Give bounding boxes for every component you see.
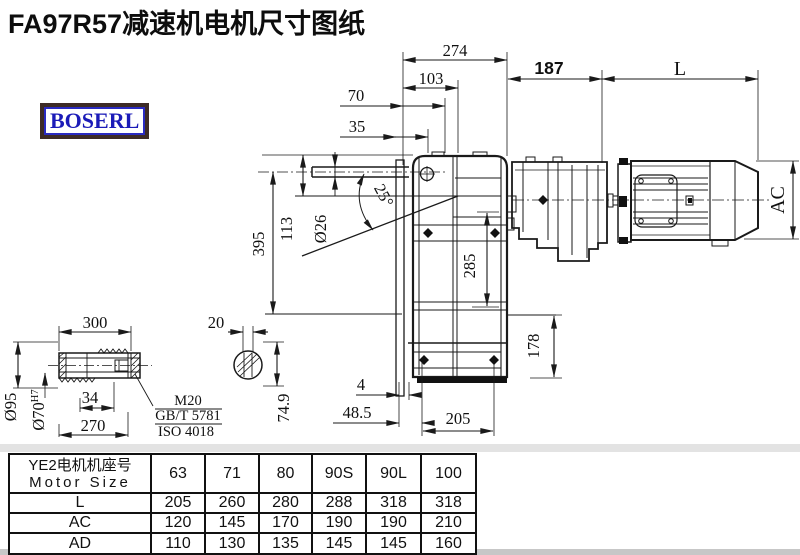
dim-300: 300 xyxy=(83,313,108,332)
dim-113: 113 xyxy=(277,217,296,241)
dim-35: 35 xyxy=(349,117,366,136)
table-row-header: YE2电机机座号 Motor Size 63 71 80 90S 90L 100 xyxy=(9,454,476,493)
table-col-71: 71 xyxy=(205,454,259,493)
dim-dia26: Ø26 xyxy=(311,215,330,243)
dim-L: L xyxy=(674,58,686,80)
table-cell: 260 xyxy=(205,493,259,513)
thread-callout-m20: M20 xyxy=(174,393,201,409)
dim-4: 4 xyxy=(357,375,365,394)
dim-dia95: Ø95 xyxy=(1,393,20,421)
table-row-AD: AD 110 130 135 145 145 160 xyxy=(9,533,476,554)
table-row-AC: AC 120 145 170 190 190 210 xyxy=(9,513,476,533)
dim-205: 205 xyxy=(446,409,471,428)
dimension-drawing-page: FA97R57减速机电机尺寸图纸 BOSERL xyxy=(0,0,800,555)
table-col-100: 100 xyxy=(421,454,476,493)
table-cell: 145 xyxy=(312,533,366,554)
dim-20: 20 xyxy=(208,313,225,332)
motor xyxy=(512,158,772,246)
table-cell: 160 xyxy=(421,533,476,554)
dim-187: 187 xyxy=(534,58,563,78)
dim-395: 395 xyxy=(249,232,268,257)
row-label-AC: AC xyxy=(9,513,151,533)
dim-34: 34 xyxy=(82,388,99,407)
table-cell: 190 xyxy=(312,513,366,533)
dim-angle-25: 25° xyxy=(370,181,398,210)
table-cell: 110 xyxy=(151,533,205,554)
dim-AC: AC xyxy=(767,186,789,214)
table-cell: 205 xyxy=(151,493,205,513)
dim-178: 178 xyxy=(524,334,543,359)
table-header-motor-size: YE2电机机座号 Motor Size xyxy=(9,454,151,493)
table-cell: 288 xyxy=(312,493,366,513)
table-cell: 145 xyxy=(366,533,421,554)
table-cell: 135 xyxy=(259,533,312,554)
header-en: Motor Size xyxy=(10,474,150,491)
dim-dia70h7-tolerance: H7 xyxy=(30,389,41,402)
table-col-90s: 90S xyxy=(312,454,366,493)
extension-lines xyxy=(13,52,799,437)
dim-70: 70 xyxy=(348,86,365,105)
table-col-90l: 90L xyxy=(366,454,421,493)
table-cell: 145 xyxy=(205,513,259,533)
dim-103: 103 xyxy=(419,69,444,88)
header-cn: YE2电机机座号 xyxy=(10,457,150,474)
table-cell: 210 xyxy=(421,513,476,533)
motor-size-table: YE2电机机座号 Motor Size 63 71 80 90S 90L 100… xyxy=(8,453,477,555)
table-cell: 280 xyxy=(259,493,312,513)
dim-274: 274 xyxy=(443,41,468,60)
r57-unit xyxy=(512,157,618,261)
dim-285: 285 xyxy=(460,254,479,279)
table-col-80: 80 xyxy=(259,454,312,493)
row-label-AD: AD xyxy=(9,533,151,554)
thread-callout-iso: ISO 4018 xyxy=(158,424,214,440)
table-cell: 170 xyxy=(259,513,312,533)
table-cell: 130 xyxy=(205,533,259,554)
table-cell: 190 xyxy=(366,513,421,533)
dim-48-5: 48.5 xyxy=(343,403,372,422)
dim-74-9: 74.9 xyxy=(274,394,293,423)
row-label-L: L xyxy=(9,493,151,513)
table-cell: 318 xyxy=(421,493,476,513)
table-col-63: 63 xyxy=(151,454,205,493)
thread-callout-gb: GB/T 5781 xyxy=(155,408,220,424)
table-row-L: L 205 260 280 288 318 318 xyxy=(9,493,476,513)
table-cell: 318 xyxy=(366,493,421,513)
dim-270: 270 xyxy=(81,416,106,435)
table-cell: 120 xyxy=(151,513,205,533)
